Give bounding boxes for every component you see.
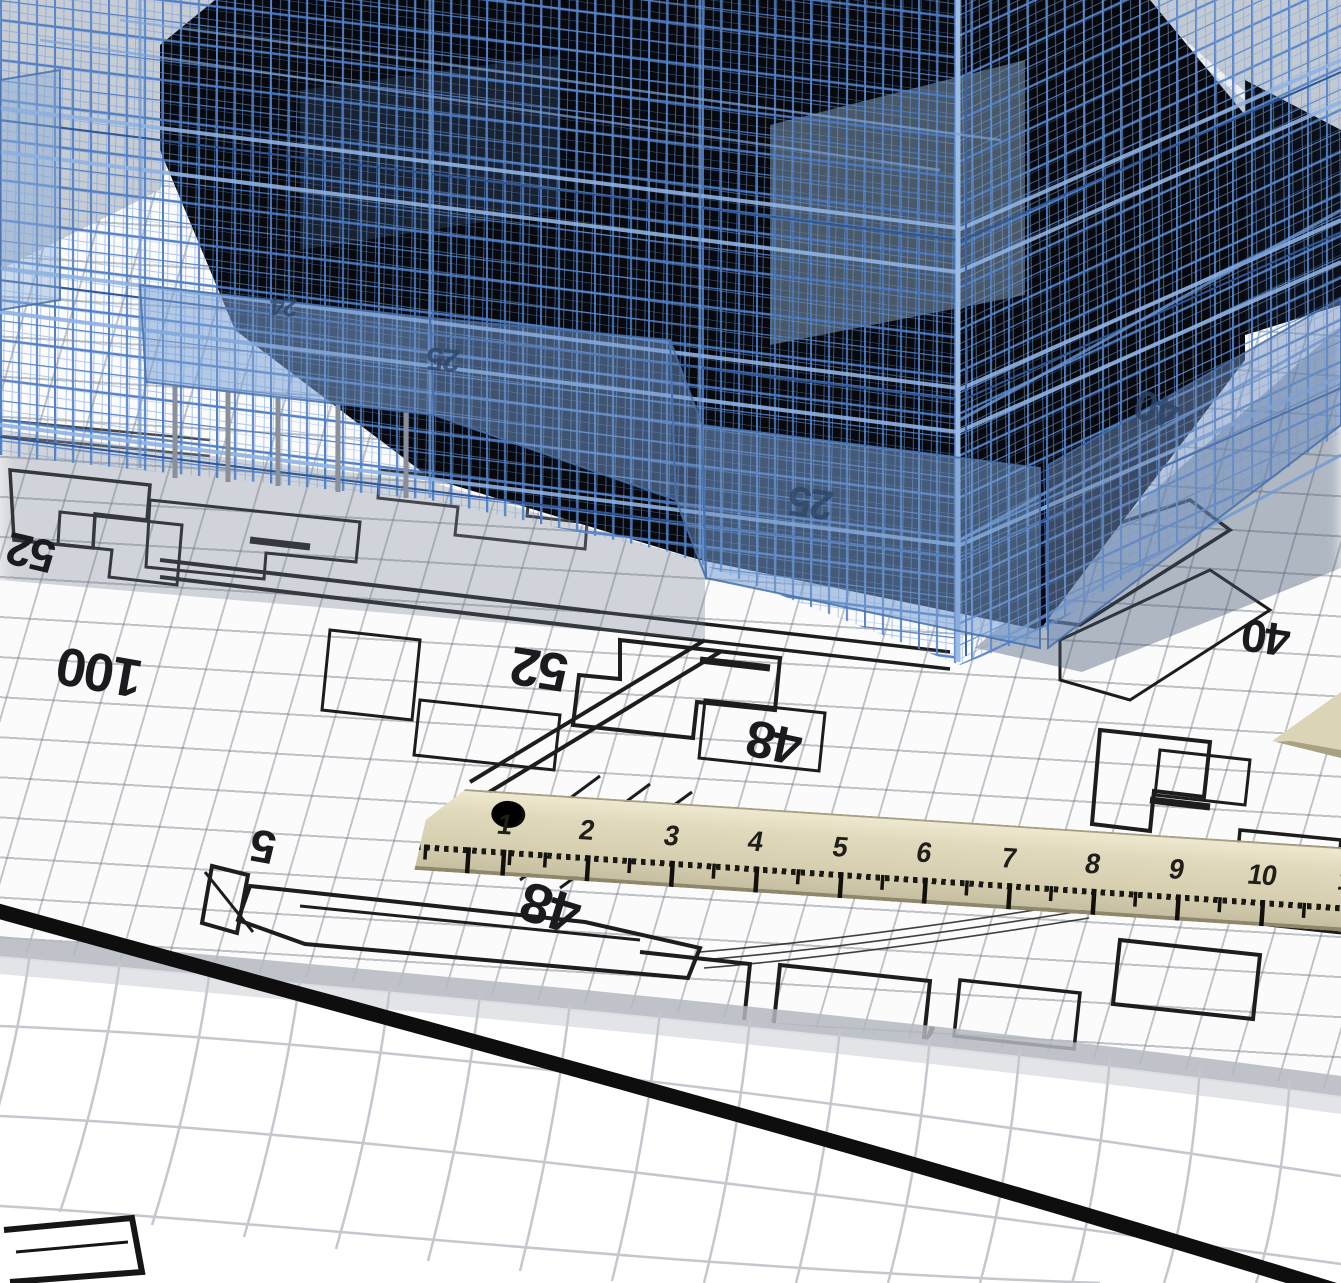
ruler-number: 4 [745,825,765,858]
plan-dimension-label: 5 [248,822,279,871]
plan-dimension-label: 25 [787,479,835,527]
ruler-number: 3 [661,820,681,853]
blueprint-architecture-scene: 52 100 52 48 48 5 40 40 25 25 24 7 [0,0,1341,1283]
ruler-number: 9 [1166,853,1186,886]
plan-dimension-label: 52 [508,638,572,700]
ruler-number: 2 [576,814,596,847]
ruler-number: 6 [914,836,934,869]
plan-dimension-label: 40 [1240,612,1293,664]
ruler-number: 7 [998,842,1018,875]
plan-dimension-label: 24 [271,293,298,321]
ruler-number: 5 [830,831,850,864]
rolled-blueprint-sheet [0,898,1341,1283]
ruler-number: 8 [1082,848,1102,881]
plan-dimension-label: 25 [427,343,461,378]
plan-dimension-label: 40 [1131,383,1184,436]
ruler-number: 11 [1335,864,1341,898]
plan-dimension-label: 52 [3,525,59,580]
plan-dimension-label: 100 [54,638,146,706]
ruler-number: 10 [1245,858,1279,892]
plan-dimension-label: 48 [743,711,806,773]
